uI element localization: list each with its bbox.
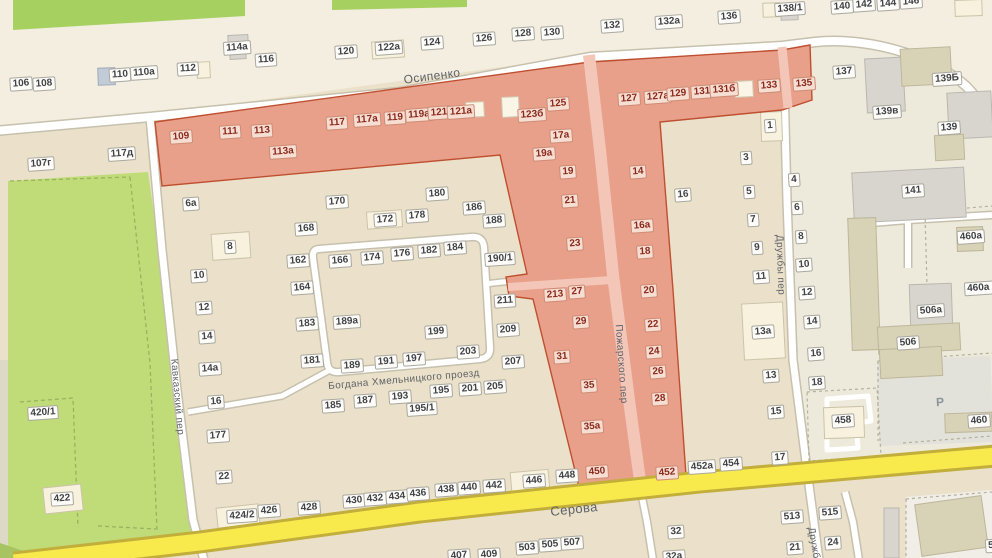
house-label: 460 <box>967 413 991 429</box>
house-label: 172 <box>373 212 397 228</box>
house-label: 446 <box>522 473 546 489</box>
house-label: 201 <box>458 381 482 397</box>
house-label: 409 <box>477 547 501 558</box>
house-label-selected: 113 <box>250 123 273 139</box>
house-label: 126 <box>472 31 496 47</box>
house-label: 440 <box>457 480 481 496</box>
map-canvas[interactable]: 106108110110а112114а116107г117д120122а12… <box>0 0 992 558</box>
house-label: 460а к1 <box>964 280 992 297</box>
street-label: Дружбы пер <box>773 235 786 296</box>
house-label: 189 <box>340 358 364 374</box>
house-label: 18 <box>808 375 826 390</box>
house-label-selected: 131б <box>709 82 739 98</box>
house-label: 454 <box>719 456 743 472</box>
house-label-selected: 125 <box>546 96 570 112</box>
house-label: 8 <box>795 230 808 245</box>
house-label-selected: 111 <box>219 124 242 139</box>
house-label: 434 <box>385 489 409 505</box>
house-label: 170 <box>325 194 349 210</box>
house-label: 132а <box>654 14 683 30</box>
house-label: 128 <box>511 26 535 42</box>
house-label: 503 <box>515 540 539 556</box>
house-label: 180 <box>425 186 449 202</box>
house-label: 139 <box>937 120 961 136</box>
house-label: 460а <box>956 229 985 245</box>
house-label-selected: 135 <box>792 76 816 92</box>
house-label-selected: 119 <box>383 110 406 126</box>
house-label: 112 <box>176 61 199 77</box>
house-label-selected: 133 <box>757 78 781 94</box>
house-label: 139в <box>872 104 902 120</box>
house-label: 10 <box>190 268 208 283</box>
house-label-selected: 109 <box>169 129 193 145</box>
house-label: 207 <box>501 354 525 370</box>
house-label: 174 <box>360 250 384 266</box>
house-label: 452а <box>687 459 716 475</box>
house-label: 458 <box>831 413 855 429</box>
house-label: 186 <box>462 200 486 216</box>
house-label: 187 <box>353 393 377 409</box>
house-label: 10 <box>795 257 813 272</box>
house-label: 203 <box>456 344 480 360</box>
house-label: 513 <box>780 509 804 525</box>
house-label: 16 <box>807 346 825 361</box>
house-label: 132 <box>600 18 624 34</box>
house-label: 21 <box>786 540 804 555</box>
house-label: 130 <box>540 25 564 41</box>
house-label: 110а <box>130 65 159 81</box>
house-label: 209 <box>496 322 520 338</box>
house-label: 515 <box>818 505 842 521</box>
house-label: 211 <box>493 293 516 309</box>
house-label: 507 <box>560 535 584 551</box>
house-label: 166 <box>328 253 352 269</box>
house-label: 14а <box>198 361 222 377</box>
house-label-selected: 452 <box>655 465 679 481</box>
house-label: 15 <box>767 404 785 419</box>
house-label: 188 <box>482 213 506 229</box>
house-label: 428 <box>297 500 321 516</box>
house-label-selected: 17а <box>549 128 573 144</box>
house-label: 426 <box>257 503 281 519</box>
house-label: 197 <box>402 351 426 367</box>
house-label: 436 <box>406 486 430 502</box>
house-label: 12 <box>195 300 213 315</box>
house-label: 106 <box>9 76 33 92</box>
house-label: 9 <box>751 241 764 256</box>
house-label: 184 <box>443 240 467 256</box>
house-label: 442 <box>482 478 506 494</box>
house-label-selected: 19 <box>559 164 577 179</box>
house-label: 108 <box>32 76 56 92</box>
house-label: 5 <box>743 185 756 200</box>
house-label: 140 <box>830 0 854 15</box>
house-label: 7 <box>747 213 760 228</box>
house-label: 24 <box>824 535 842 550</box>
map-labels: 106108110110а112114а116107г117д120122а12… <box>0 0 992 558</box>
house-label: 124 <box>420 35 444 51</box>
house-label: 13а <box>751 324 775 340</box>
house-label: 141 <box>901 183 925 199</box>
street-label: Серова <box>550 499 599 519</box>
house-label: 4 <box>788 173 801 188</box>
house-label-selected: 31 <box>553 349 571 364</box>
house-label: 178 <box>405 208 429 224</box>
house-label: 190/1 <box>484 251 516 267</box>
house-label-selected: 14 <box>629 164 647 179</box>
house-label: 185 <box>321 398 345 414</box>
house-label-selected: 16а <box>630 218 654 234</box>
house-label: 16 <box>207 394 225 409</box>
house-label-selected: 117 <box>325 115 348 131</box>
house-label: 164 <box>290 280 314 296</box>
house-label: 205 <box>483 379 507 395</box>
house-label-selected: 22 <box>644 317 662 332</box>
house-label: 506 <box>896 335 920 351</box>
house-label-selected: 24 <box>645 344 663 359</box>
house-label: 136 <box>717 9 741 25</box>
house-label: 107г <box>27 156 55 172</box>
house-label: 191 <box>374 354 398 370</box>
house-label-selected: 129 <box>666 86 690 102</box>
house-label: 137 <box>832 64 856 80</box>
house-label: 420/1 <box>27 405 59 421</box>
house-label: 422 <box>50 491 74 507</box>
house-label: 32 <box>667 524 685 539</box>
house-label: 117д <box>107 146 136 162</box>
house-label: 162 <box>286 253 310 269</box>
house-label: 146 <box>899 0 923 10</box>
house-label: 13 <box>762 368 780 383</box>
house-label: 14 <box>803 314 821 329</box>
house-label: 122а <box>374 40 403 56</box>
house-label: 181 <box>300 353 324 369</box>
house-label: 110 <box>108 67 131 83</box>
house-label: 183 <box>295 316 319 332</box>
house-label: 16 <box>674 187 692 202</box>
house-label-selected: 26 <box>649 364 667 379</box>
house-label: 430 <box>342 493 366 509</box>
parking-icon: Р <box>936 395 945 409</box>
house-label: 407 <box>447 548 471 558</box>
house-label: 1 <box>764 119 777 134</box>
house-label: 12 <box>798 285 816 300</box>
house-label-selected: 28 <box>651 391 669 406</box>
house-label-selected: 18 <box>636 244 654 259</box>
house-label-selected: 117а <box>353 112 382 128</box>
house-label-selected: 113а <box>269 144 298 160</box>
house-label: 144 <box>876 0 900 12</box>
house-label-selected: 213 <box>543 287 567 303</box>
house-label: 195/1 <box>406 401 438 417</box>
house-label: 11 <box>752 269 770 284</box>
house-label: 8 <box>224 240 237 255</box>
house-label: 199 <box>424 324 448 340</box>
house-label: 32а <box>662 549 686 558</box>
house-label: 17 <box>771 450 789 465</box>
house-label: 182 <box>417 243 441 259</box>
house-label: 14 <box>198 329 216 344</box>
house-label-selected: 35а <box>580 419 604 435</box>
house-label: 3 <box>740 151 753 166</box>
house-label-selected: 450 <box>585 464 609 480</box>
house-label: 6а <box>182 196 200 211</box>
house-label: 189а <box>332 314 361 330</box>
house-label: 139Б <box>932 71 963 87</box>
house-label: 505 <box>538 537 562 553</box>
house-label-selected: 19а <box>532 146 556 162</box>
house-label: 5 <box>985 539 992 554</box>
house-label: 6 <box>791 201 804 216</box>
house-label-selected: 127 <box>617 91 641 107</box>
house-label: 424/2 <box>226 508 258 524</box>
house-label: 114а <box>223 40 252 56</box>
house-label: 448 <box>555 468 579 484</box>
house-label: 120 <box>334 44 358 60</box>
house-label-selected: 35 <box>580 378 598 393</box>
house-label-selected: 21 <box>561 193 579 208</box>
house-label: 142 <box>852 0 876 13</box>
street-label: Осипенко <box>403 65 461 86</box>
house-label: 506а <box>916 303 945 319</box>
street-label: Пожарского пер <box>613 324 630 404</box>
house-label: 22 <box>215 469 233 484</box>
house-label-selected: 121а <box>446 104 475 120</box>
house-label: 195 <box>429 383 453 399</box>
house-label-selected: 20 <box>640 283 658 298</box>
house-label-selected: 23 <box>566 236 584 251</box>
house-label: 168 <box>294 221 318 237</box>
house-label-selected: 123б <box>517 107 547 123</box>
house-label: 116 <box>254 52 277 68</box>
house-label: 432 <box>363 491 387 507</box>
street-label: Кавказский пер <box>168 358 186 435</box>
house-label-selected: 29 <box>572 314 590 329</box>
house-label: 177 <box>206 428 230 444</box>
house-label: 138/1 <box>774 1 806 17</box>
house-label-selected: 27 <box>568 284 586 299</box>
house-label: 176 <box>390 246 414 262</box>
house-label: 438 <box>434 482 458 498</box>
